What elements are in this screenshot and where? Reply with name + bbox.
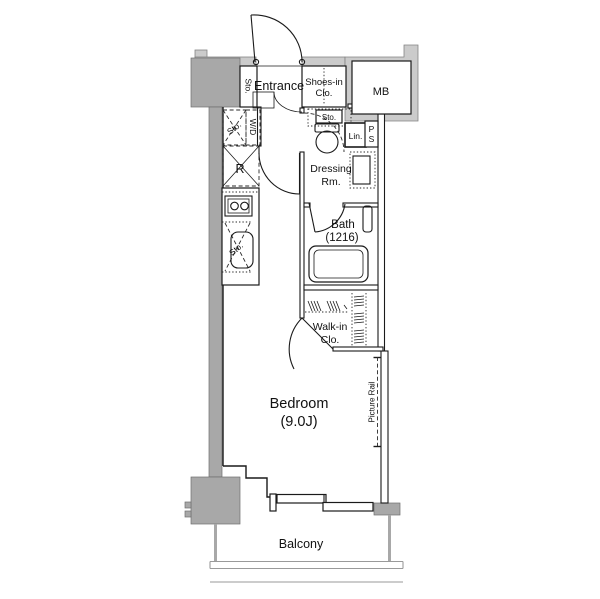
pillar-tab-2 (185, 511, 191, 517)
window-left-cap (270, 494, 276, 511)
refrigerator-label: R (235, 162, 244, 176)
kitchen-area (222, 110, 260, 285)
entrance-door-leaf (251, 15, 255, 62)
wall-bottom-right (374, 503, 400, 515)
washer-inner (353, 156, 370, 184)
pillar-bottom-left (191, 477, 240, 524)
bath-walkin-wall (304, 285, 378, 290)
pillar-tab-1 (185, 502, 191, 508)
entrance-door-swing-arc (251, 15, 302, 62)
dressing-room-label-2: Rm. (321, 176, 340, 188)
bedroom-label-2: (9.0J) (280, 414, 317, 430)
bath-door-leaf (309, 203, 315, 232)
kitchen-counter (222, 188, 259, 285)
washer-dryer-label: W/D (248, 119, 258, 136)
walkin-door-arc (289, 318, 302, 369)
storage-wd-label: Sto. (225, 119, 243, 136)
bedroom-label-1: Bedroom (270, 396, 329, 412)
bath-top-wall (343, 203, 378, 207)
right-wall-upper (378, 114, 385, 351)
toilet-bowl (316, 131, 338, 153)
bath-counter (363, 206, 372, 232)
entrance-step-curve (274, 92, 302, 112)
walkin-bottom-wall (333, 347, 383, 351)
pillar-top-left (191, 58, 240, 107)
entrance-storage-label: Sto. (244, 78, 254, 93)
pipe-space-label-1: P (369, 124, 375, 134)
entrance-label: Entrance (254, 79, 304, 93)
washer-space (350, 152, 375, 188)
window-panel-1 (277, 495, 326, 504)
wall-band-top-right (302, 57, 345, 66)
labels: Entrance Sto. Shoes-in Clo. MB Sto. W/D … (225, 77, 389, 551)
corridor-door (259, 146, 300, 194)
walkin-label-1: Walk-in (313, 321, 348, 333)
shoes-closet-label-1: Shoes-in (305, 77, 343, 88)
floor-plan-page: Entrance Sto. Shoes-in Clo. MB Sto. W/D … (0, 0, 600, 599)
floor-plan: Entrance Sto. Shoes-in Clo. MB Sto. W/D … (0, 0, 600, 599)
bath-label-1: Bath (331, 219, 355, 231)
bath-label-2: (1216) (325, 232, 358, 244)
meter-box-label: MB (373, 86, 390, 98)
corridor-wall (300, 152, 304, 318)
right-wall-lower (381, 351, 388, 503)
balcony-label: Balcony (279, 537, 324, 551)
window-panel-2 (323, 503, 373, 512)
shoes-closet-label-2: Clo. (316, 88, 333, 99)
pipe-space-label-2: S (369, 134, 375, 144)
dressing-room-label-1: Dressing (310, 163, 352, 175)
bathtub (309, 246, 368, 282)
corridor-door-arc (259, 153, 300, 194)
picture-rail-label: Picture Rail (368, 381, 377, 422)
hanger-hatch-right (354, 296, 364, 343)
dressing-room (304, 109, 378, 188)
hanger-hatch-top (308, 301, 347, 311)
walkin-label-2: Clo. (321, 334, 340, 346)
toilet-storage-label: Sto. (322, 113, 336, 122)
left-wall (209, 107, 222, 477)
linen-label: Lin. (349, 131, 363, 141)
